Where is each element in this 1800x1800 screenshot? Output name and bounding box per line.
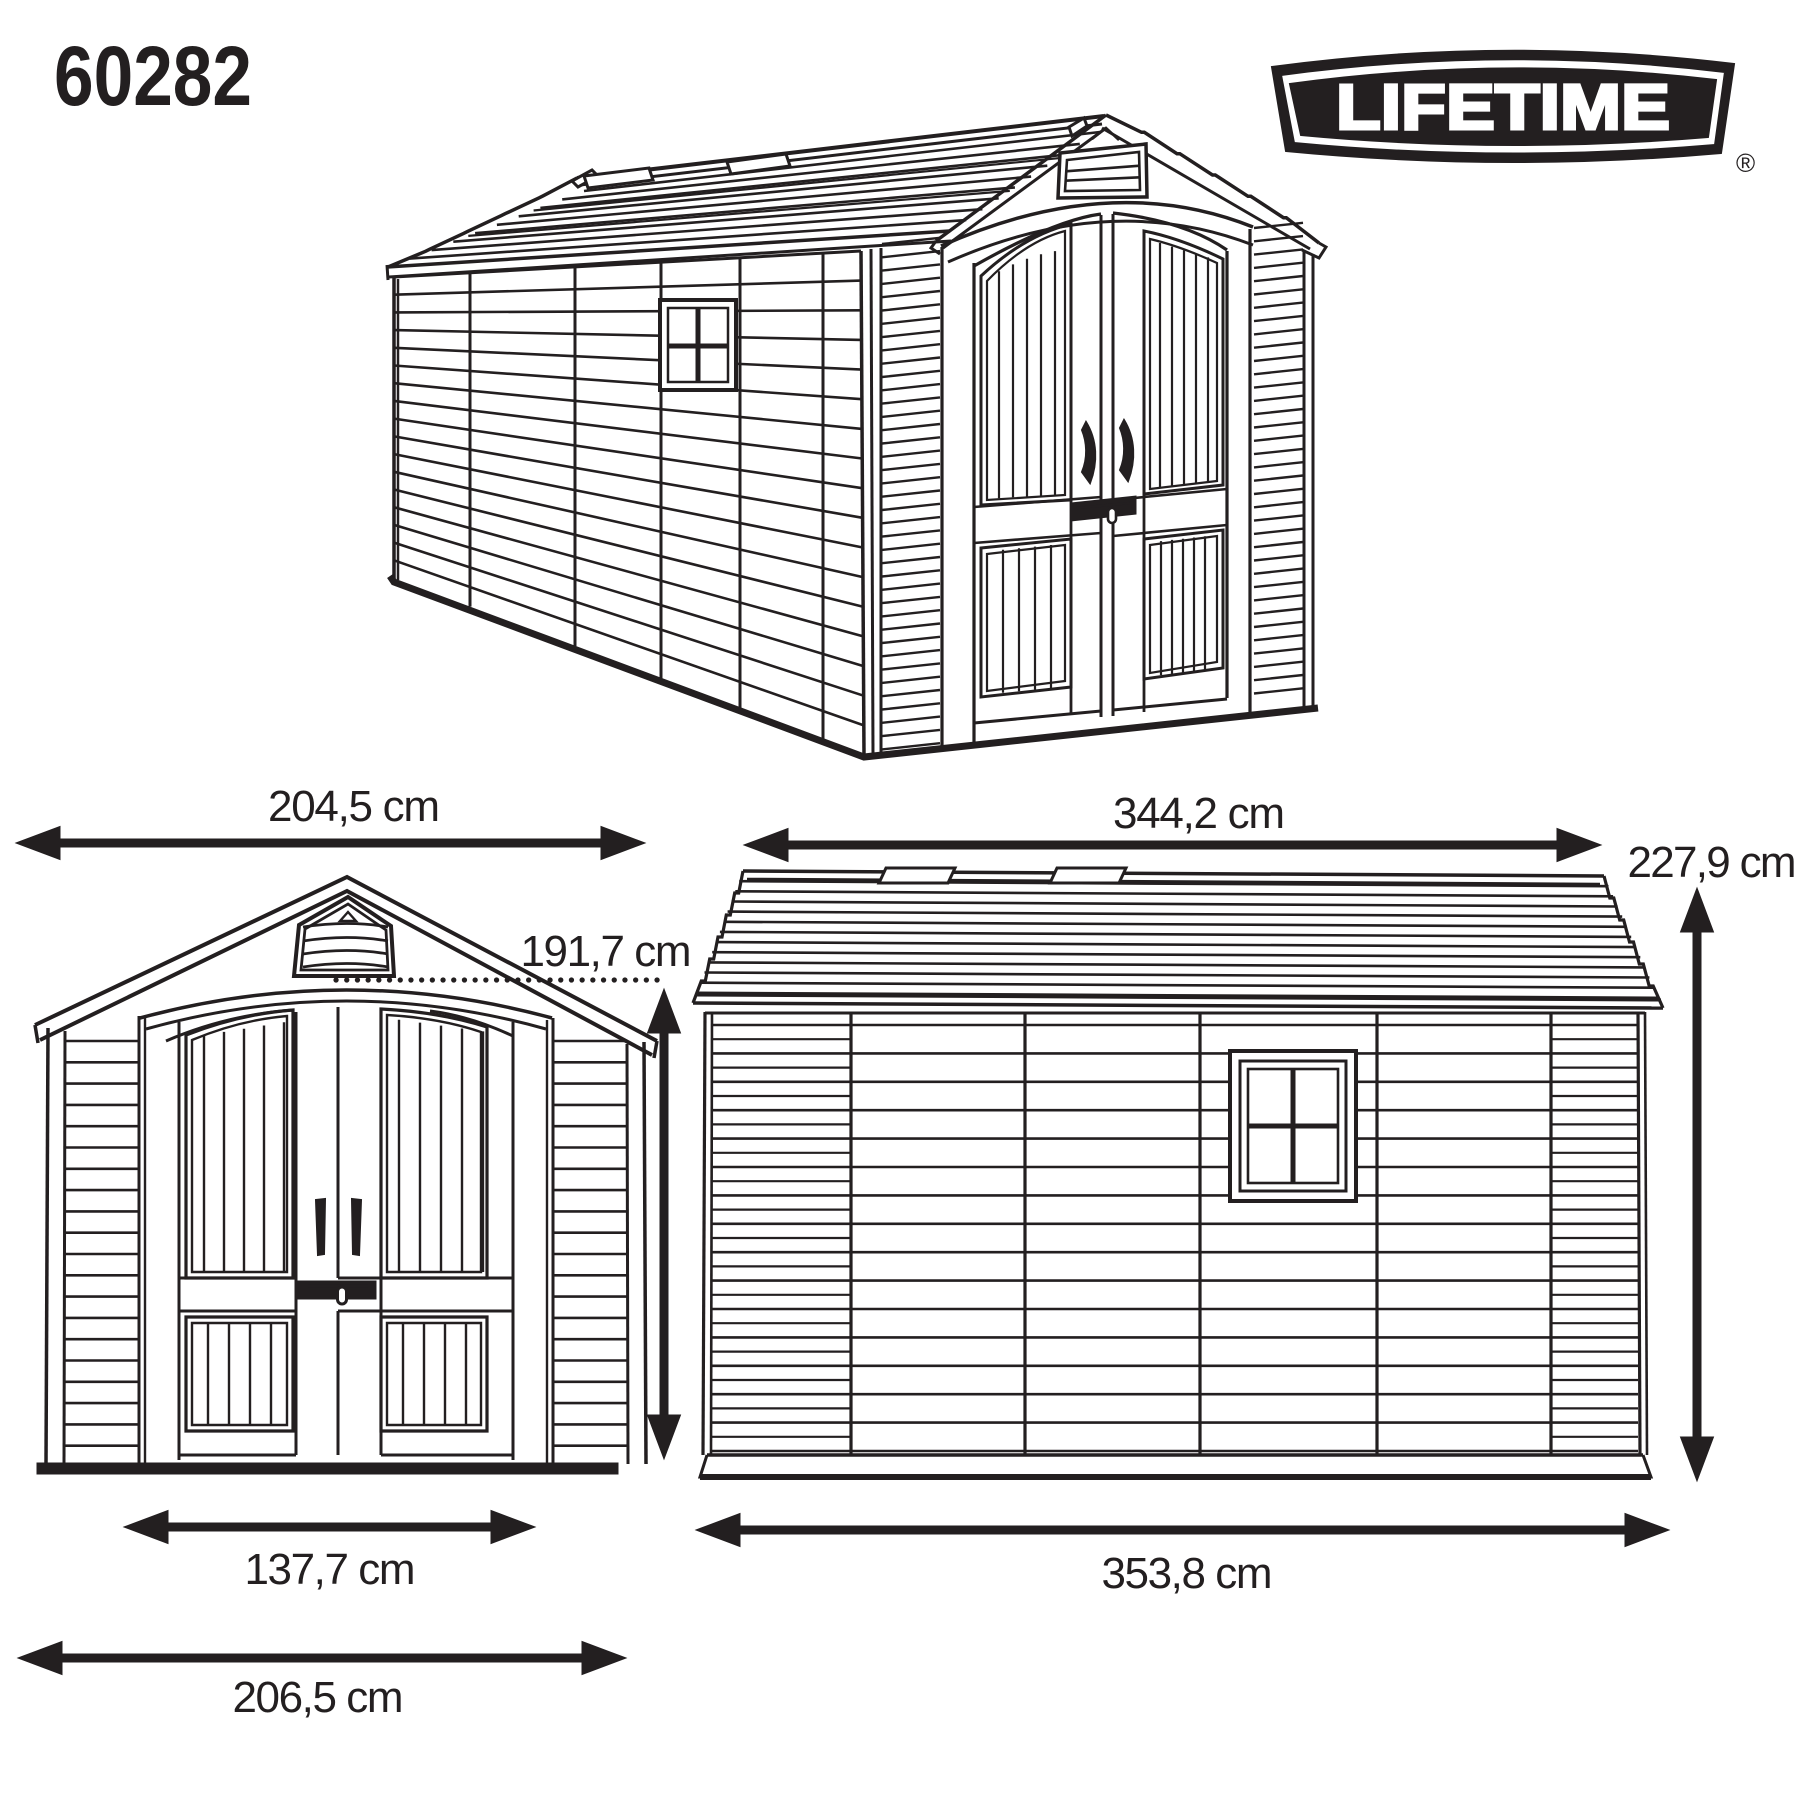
svg-text:204,5 cm: 204,5 cm [268,782,440,831]
svg-text:206,5 cm: 206,5 cm [233,1673,404,1722]
svg-text:137,7 cm: 137,7 cm [245,1545,416,1594]
svg-text:LIFETIME: LIFETIME [1336,71,1670,143]
svg-text:60282: 60282 [54,29,252,123]
svg-text:227,9 cm: 227,9 cm [1628,838,1797,887]
svg-text:344,2 cm: 344,2 cm [1113,789,1285,838]
svg-text:353,8 cm: 353,8 cm [1102,1549,1273,1598]
svg-text:191,7 cm: 191,7 cm [521,927,692,976]
svg-text:®: ® [1736,148,1755,178]
